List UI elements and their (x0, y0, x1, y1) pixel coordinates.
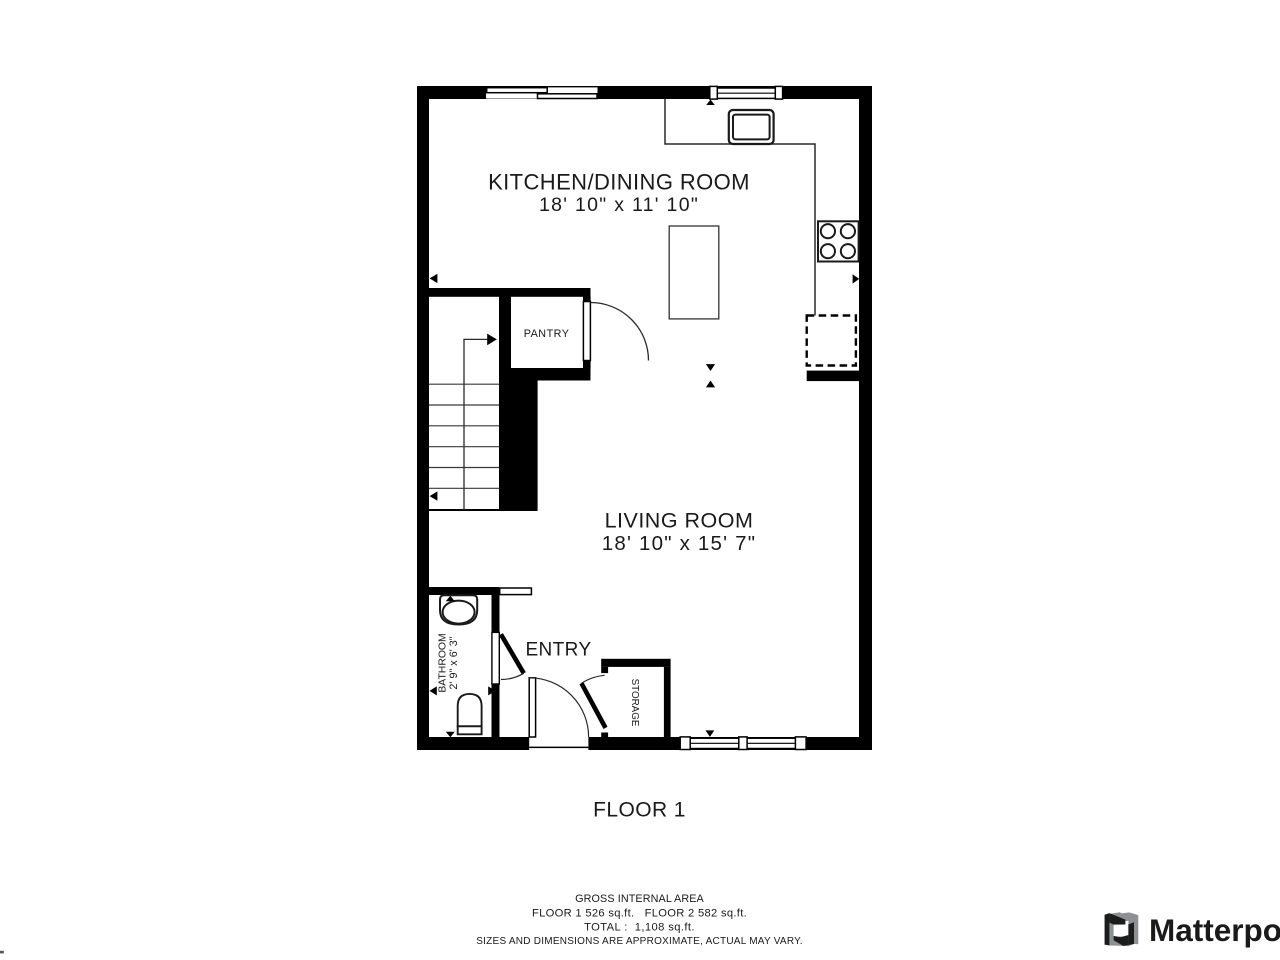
svg-text:FLOOR 1: FLOOR 1 (593, 798, 686, 821)
svg-text:ENTRY: ENTRY (525, 640, 591, 661)
svg-text:STORAGE: STORAGE (629, 679, 640, 727)
svg-text:Matterport: Matterport (1149, 912, 1280, 948)
svg-text:KITCHEN/DINING ROOM: KITCHEN/DINING ROOM (488, 170, 750, 195)
svg-text:LIVING ROOM: LIVING ROOM (605, 509, 754, 533)
svg-text:2' 9" x 6' 3": 2' 9" x 6' 3" (448, 636, 460, 689)
svg-text:SIZES AND DIMENSIONS ARE APPRO: SIZES AND DIMENSIONS ARE APPROXIMATE, AC… (476, 936, 803, 947)
svg-text:GROSS INTERNAL AREA: GROSS INTERNAL AREA (575, 893, 704, 905)
svg-text:TOTAL : 1,108 sq.ft.: TOTAL : 1,108 sq.ft. (584, 921, 695, 933)
svg-text:18' 10" x 11' 10": 18' 10" x 11' 10" (539, 194, 699, 216)
svg-text:18' 10" x 15' 7": 18' 10" x 15' 7" (602, 532, 756, 555)
svg-text:BATHROOM: BATHROOM (437, 633, 448, 692)
svg-text:FLOOR 1 526 sq.ft. FLOOR 2 5: FLOOR 1 526 sq.ft. FLOOR 2 582 sq.ft. (532, 907, 747, 919)
svg-text:PANTRY: PANTRY (524, 328, 570, 340)
